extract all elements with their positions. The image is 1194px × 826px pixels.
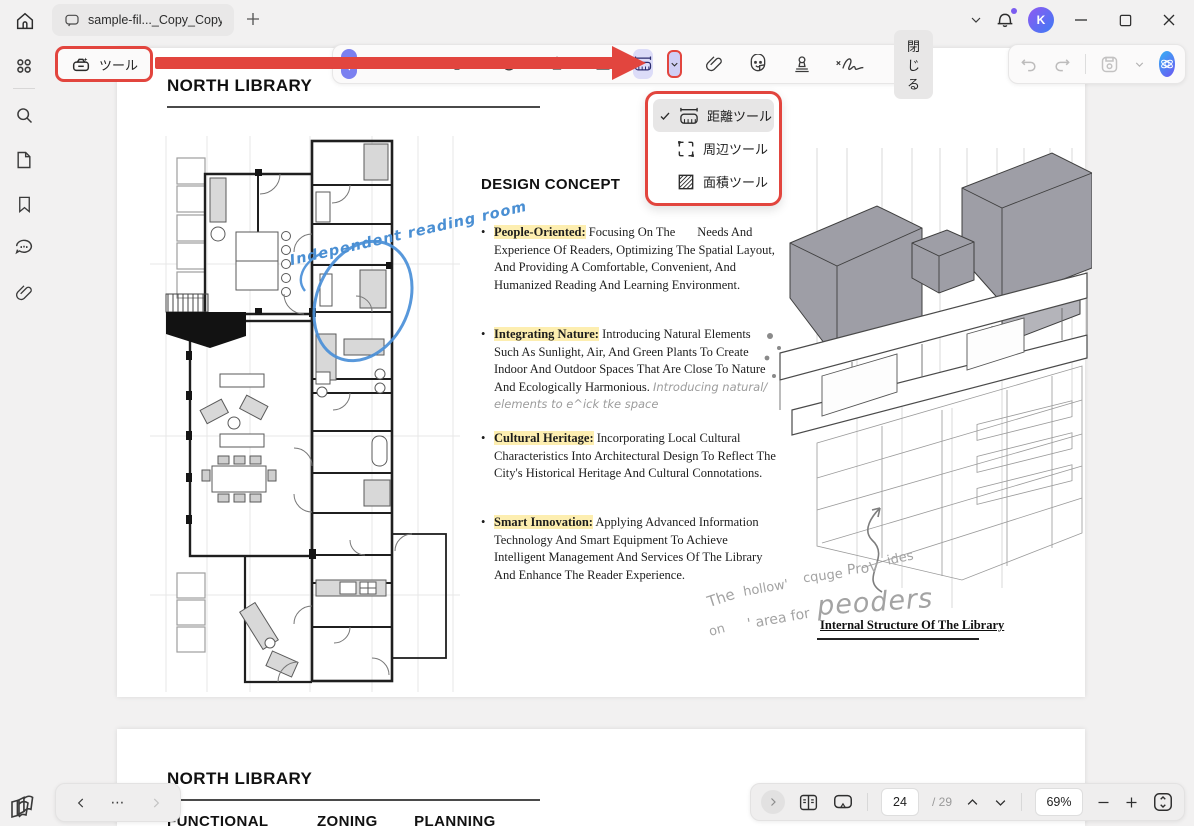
bar-divider [1021, 793, 1022, 811]
bullet-label: Integrating Nature: [494, 327, 599, 341]
app-window: sample-fil..._Copy_Copy K [0, 0, 1194, 826]
two-page-view-icon[interactable] [798, 792, 819, 813]
check-icon [659, 110, 671, 122]
save-icon[interactable] [1099, 54, 1120, 75]
fit-page-icon[interactable] [1152, 791, 1174, 813]
toolbar-divider [1085, 54, 1086, 74]
red-annotation-arrow [155, 57, 615, 69]
zoom-out-icon[interactable] [1096, 795, 1111, 810]
pages-icon[interactable] [8, 144, 40, 176]
page-title: NORTH LIBRARY [167, 769, 312, 789]
stamp-tool-icon[interactable] [792, 53, 812, 75]
bookmark-icon[interactable] [8, 188, 40, 220]
presentation-mode-icon[interactable] [832, 791, 854, 813]
next-page-icon[interactable] [993, 795, 1008, 810]
document-tab[interactable]: sample-fil..._Copy_Copy [52, 4, 234, 36]
subtitle-word: PLANNING [414, 813, 496, 826]
home-button[interactable] [10, 7, 40, 35]
new-tab-button[interactable] [244, 10, 262, 28]
perimeter-tool-icon [676, 139, 696, 159]
red-annotation-arrowhead [612, 46, 646, 80]
tab-title: sample-fil..._Copy_Copy [88, 13, 222, 27]
sticker-tool-icon[interactable] [748, 53, 768, 75]
caption-rule [817, 638, 979, 640]
previous-page-icon[interactable] [965, 795, 980, 810]
title-rule [167, 106, 540, 108]
undo-icon[interactable] [1019, 54, 1039, 74]
maximize-button[interactable] [1108, 5, 1142, 35]
menu-item-label: 面積ツール [703, 172, 768, 191]
sidebar [0, 40, 48, 826]
view-controls-bar: 24 / 29 69% [750, 783, 1185, 821]
bullet-marker: • [481, 326, 485, 344]
home-icon [14, 10, 36, 32]
avatar[interactable]: K [1028, 7, 1054, 33]
close-window-button[interactable] [1152, 5, 1186, 35]
concept-bullet-1: • People-Oriented: Focusing On The Needs… [494, 224, 776, 294]
bar-divider [867, 793, 868, 811]
minimize-button[interactable] [1064, 5, 1098, 35]
chevron-down-icon[interactable] [968, 12, 984, 28]
sketch-caption: Internal Structure Of The Library [820, 618, 1004, 633]
apps-grid-icon[interactable] [8, 50, 40, 82]
paperclip-tool-icon[interactable] [704, 53, 724, 75]
bullet-label: Smart Innovation: [494, 515, 593, 529]
tools-button-label: ツール [99, 55, 138, 74]
floor-plan-drawing [150, 136, 460, 692]
history-toolbar [1008, 44, 1186, 84]
bullet-marker: • [481, 430, 485, 448]
toolbox-icon [70, 53, 92, 75]
close-toolbar-button[interactable]: 閉じる [894, 30, 933, 99]
page-notes-icon[interactable] [12, 792, 38, 818]
document-tab-icon [64, 12, 80, 28]
area-tool-icon [676, 172, 696, 192]
notification-dot [1011, 8, 1017, 14]
signature-tool-icon[interactable] [834, 53, 866, 75]
measure-tools-menu: 距離ツール 周辺ツール 面積ツール [645, 91, 782, 206]
bullet-marker: • [481, 514, 485, 532]
attachment-icon[interactable] [8, 277, 40, 309]
redo-icon[interactable] [1052, 54, 1072, 74]
forward-icon[interactable] [149, 796, 163, 810]
back-icon[interactable] [74, 796, 88, 810]
concept-bullet-2: • Integrating Nature: Introducing Natura… [494, 326, 776, 414]
zoom-level-input[interactable]: 69% [1035, 788, 1083, 816]
save-options-chevron-icon[interactable] [1133, 58, 1146, 71]
titlebar: sample-fil..._Copy_Copy K [0, 0, 1194, 40]
ai-assistant-button[interactable] [1159, 51, 1175, 77]
pdf-page-1: NORTH LIBRARY [117, 48, 1085, 697]
subtitle-word: ZONING [317, 813, 378, 826]
zoom-in-icon[interactable] [1124, 795, 1139, 810]
title-rule [167, 799, 540, 801]
concept-bullet-3: • Cultural Heritage: Incorporating Local… [494, 430, 776, 483]
more-pages-icon[interactable]: ⋯ [111, 794, 126, 811]
tools-button[interactable]: ツール [55, 46, 153, 82]
page-title: NORTH LIBRARY [167, 76, 312, 96]
search-icon[interactable] [8, 99, 40, 131]
subtitle-word: FUNCTIONAL [167, 813, 269, 826]
measure-tool-dropdown-chevron[interactable] [667, 50, 682, 78]
sidebar-divider [13, 88, 35, 89]
page-number-input[interactable]: 24 [881, 788, 919, 816]
expand-bar-button[interactable] [761, 790, 785, 814]
bullet-label: People-Oriented: [494, 225, 586, 239]
building-3d-sketch [762, 148, 1092, 618]
notifications-button[interactable] [994, 8, 1018, 32]
menu-item-label: 距離ツール [707, 106, 772, 125]
distance-tool-icon [678, 107, 700, 125]
menu-item-distance-tool[interactable]: 距離ツール [653, 99, 774, 132]
menu-item-area-tool[interactable]: 面積ツール [653, 165, 774, 198]
page-history-nav: ⋯ [55, 783, 181, 822]
page-total-label: / 29 [932, 795, 952, 809]
menu-item-perimeter-tool[interactable]: 周辺ツール [653, 132, 774, 165]
handwritten-sketch-note: The hollow' cquge ProV ides on ' area fo… [695, 553, 1015, 663]
bullet-marker: • [481, 224, 485, 242]
comments-icon[interactable] [8, 232, 40, 264]
concept-heading: DESIGN CONCEPT [481, 176, 620, 193]
menu-item-label: 周辺ツール [703, 139, 768, 158]
bullet-label: Cultural Heritage: [494, 431, 594, 445]
